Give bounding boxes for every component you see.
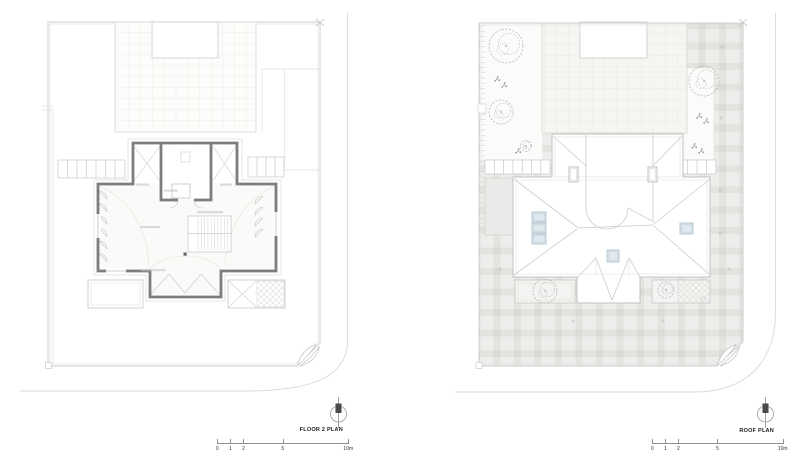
scale-number: 5 [716,446,719,452]
scale-number: 1 [664,446,667,452]
scale-number: 10m [343,446,353,452]
scale-tick [783,439,784,444]
column [184,253,187,256]
scale-bar-roof: 012510m [652,437,796,455]
scale-tick [348,439,349,444]
stair [188,216,231,252]
scale-tick [243,439,244,444]
courtyard-opening [580,22,647,58]
planting-strip-left [58,160,125,178]
scale-tick [665,439,666,444]
planting-strip-right [678,160,716,174]
planting-strip-left [485,160,550,174]
roof-planter-right [652,280,710,303]
scale-tick [652,439,653,444]
corner-marker [476,363,482,369]
planting-strip-right [248,157,284,177]
scale-bar-floor2: 012510m [217,437,362,455]
north-arrow-icon [331,397,347,428]
scale-number: 2 [677,446,680,452]
north-arrow-icon [758,397,774,428]
scale-number: 2 [242,446,245,452]
scale-number: 10m [778,446,788,452]
architectural-sheet: FLOOR 2 PLAN ROOF PLAN 012510m 012510m [0,0,800,472]
corner-marker [46,363,52,369]
gate-marker [478,104,486,113]
courtyard-opening [152,22,218,58]
scale-number: 0 [651,446,654,452]
scale-tick [678,439,679,444]
roof-plan-drawing [455,13,776,428]
site-plan-drawing [0,0,800,472]
gate-swing-icon [298,345,320,367]
scale-number: 5 [281,446,284,452]
terrace-hatch-right [228,280,285,308]
scale-tick [230,439,231,444]
floor2-plan-title: FLOOR 2 PLAN [258,427,343,433]
courtyard-tiles-floor2 [115,22,256,132]
scale-tick [717,439,718,444]
scale-tick [217,439,218,444]
service-deck [485,178,513,235]
scale-number: 0 [216,446,219,452]
terrace-planter-left [88,280,143,308]
floor2-plan-drawing [20,13,348,428]
scale-tick [283,439,284,444]
scale-number: 1 [229,446,232,452]
courtyard-tiles-roof [542,22,687,133]
roof-plan-title: ROOF PLAN [689,428,774,434]
